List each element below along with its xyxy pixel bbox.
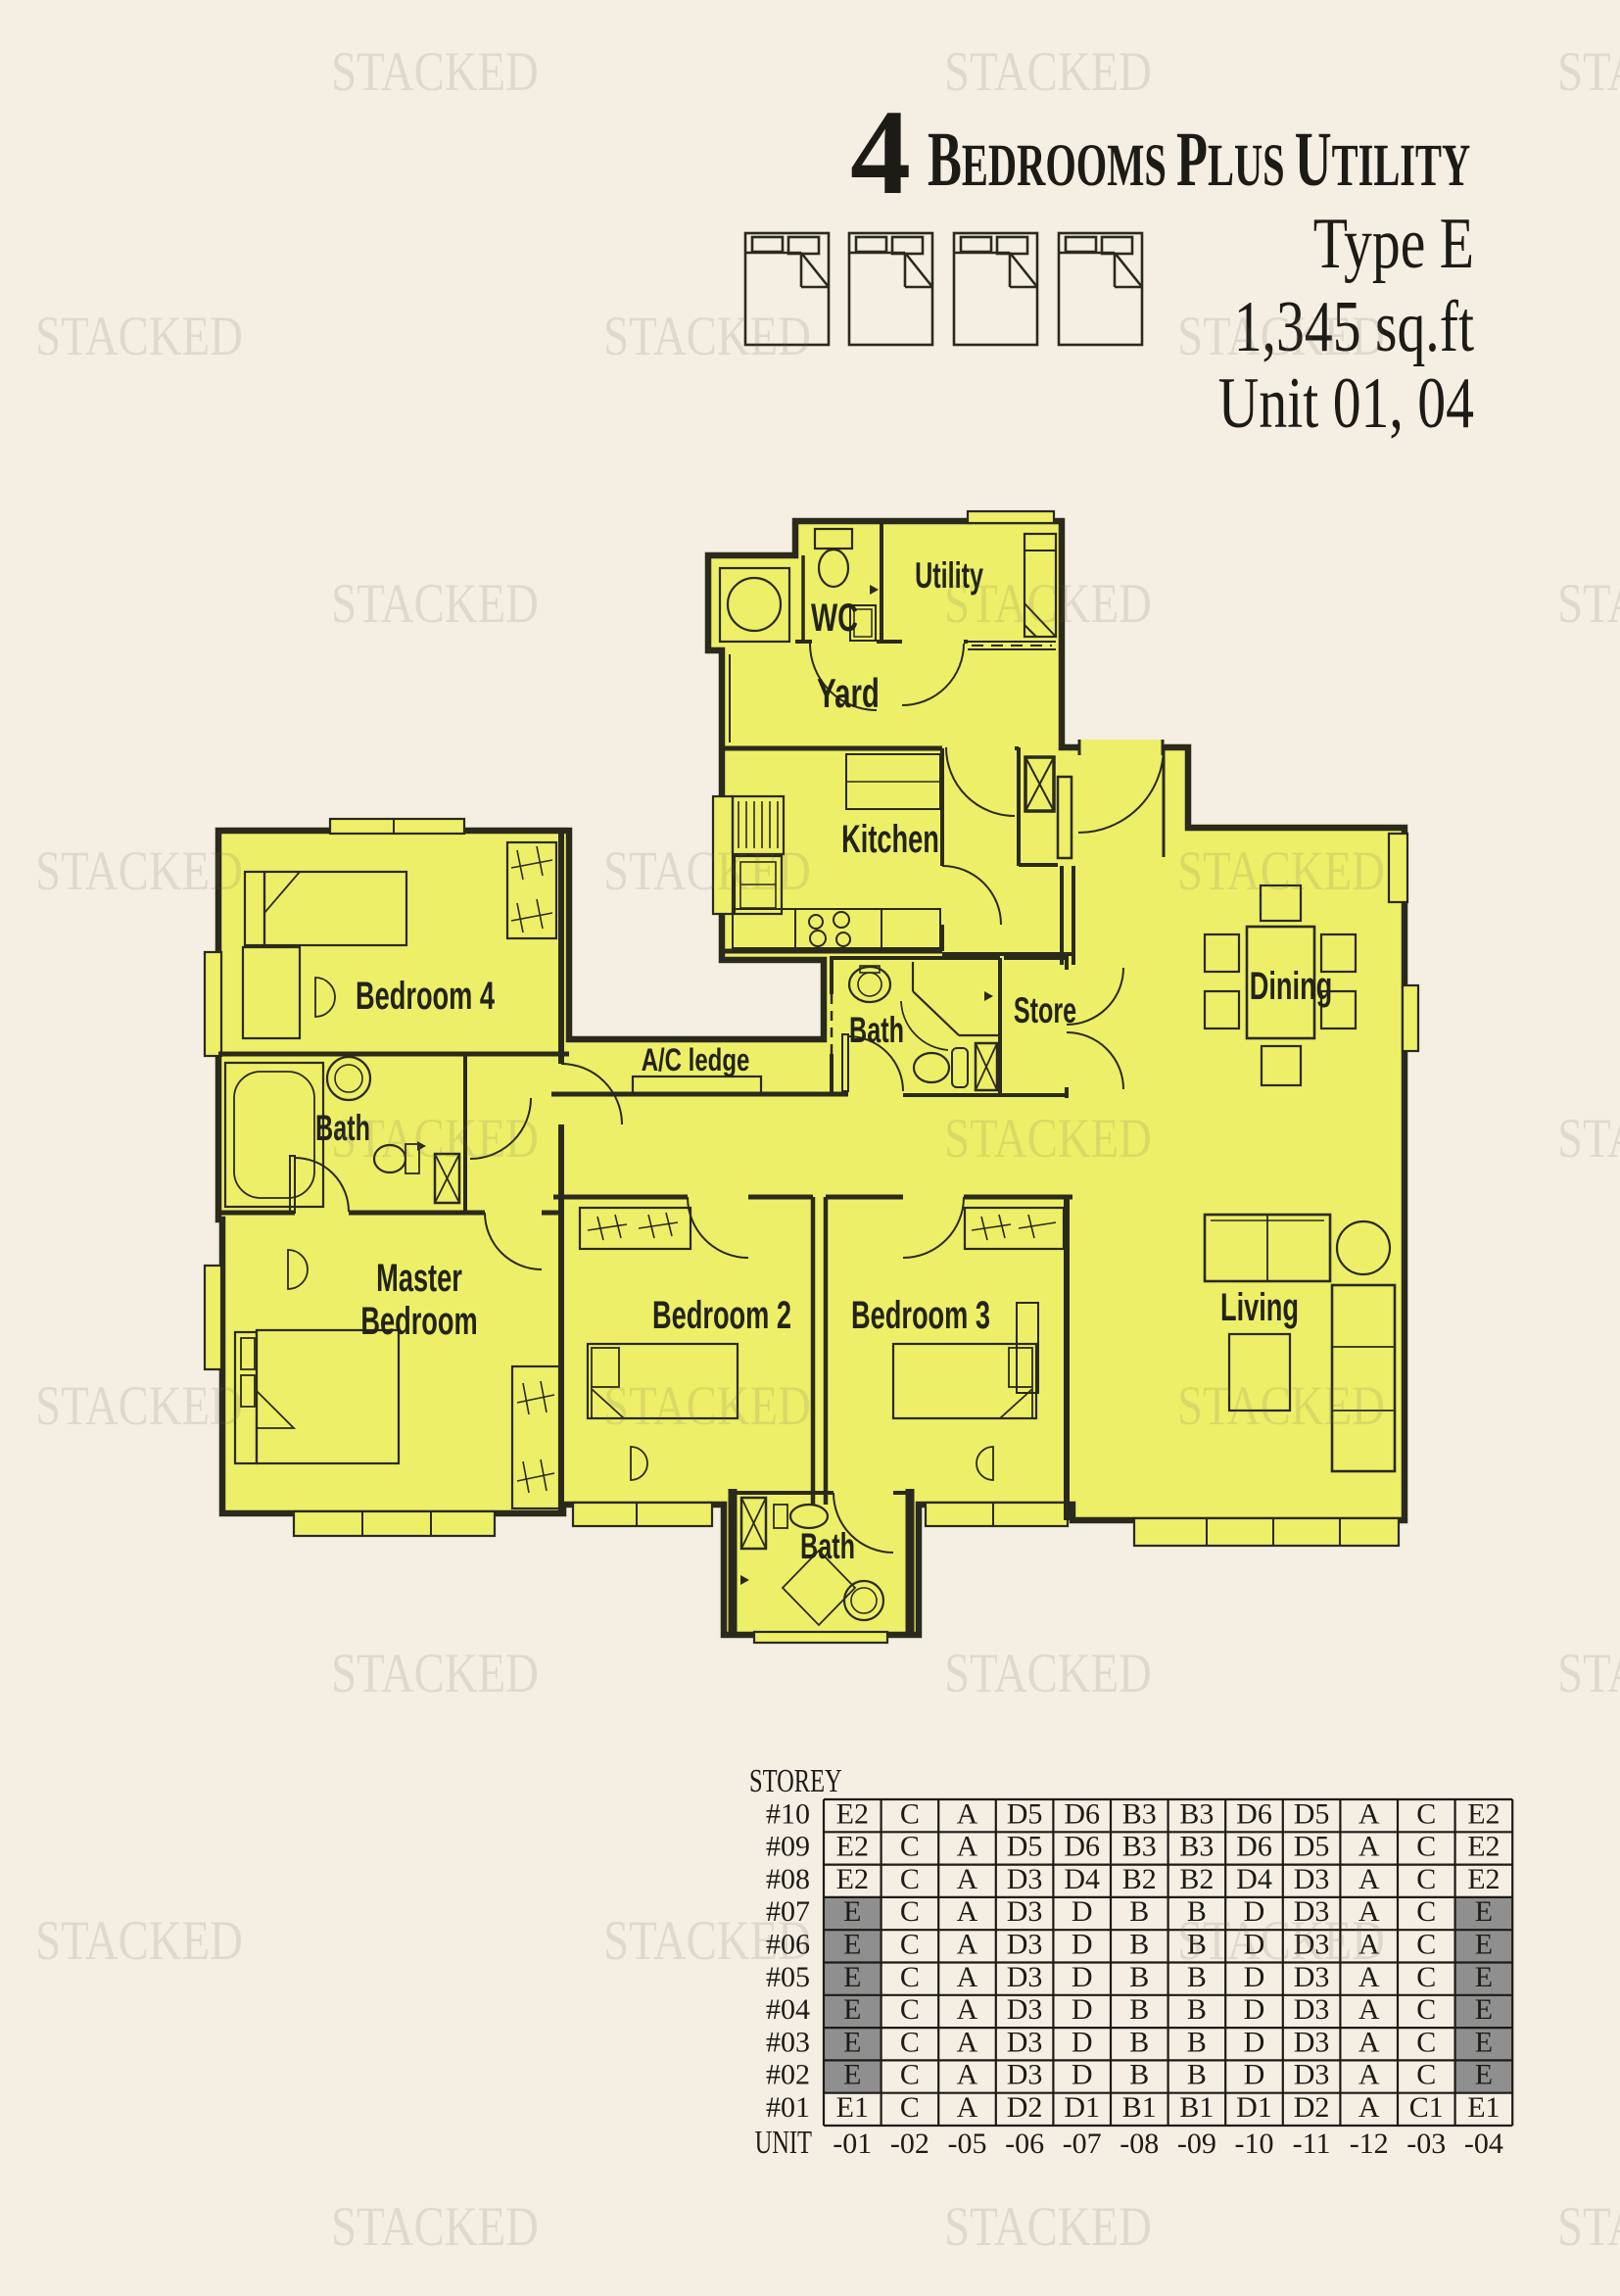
svg-text:STACKED: STACKED [35, 1911, 243, 1972]
svg-text:B: B [1129, 2026, 1149, 2058]
svg-text:STACKED: STACKED [944, 1109, 1152, 1170]
svg-text:STACKED: STACKED [331, 2197, 539, 2258]
svg-text:A: A [957, 1797, 978, 1830]
svg-text:B: B [1129, 1895, 1149, 1928]
svg-text:D: D [1244, 1993, 1265, 2026]
svg-text:B3: B3 [1179, 1831, 1214, 1863]
svg-text:Living: Living [1220, 1286, 1299, 1329]
svg-text:C: C [900, 2026, 920, 2058]
svg-text:C: C [900, 1797, 920, 1830]
svg-text:-07: -07 [1063, 2128, 1102, 2160]
svg-text:D3: D3 [1007, 2059, 1043, 2091]
svg-text:STACKED: STACKED [331, 1109, 539, 1170]
svg-text:4: 4 [850, 85, 911, 219]
svg-text:-12: -12 [1350, 2128, 1389, 2160]
svg-text:D3: D3 [1007, 1961, 1043, 1993]
svg-text:#08: #08 [766, 1863, 810, 1895]
svg-text:D5: D5 [1007, 1797, 1043, 1830]
svg-text:C: C [900, 1863, 920, 1895]
svg-text:D3: D3 [1294, 1993, 1330, 2026]
svg-text:E2: E2 [836, 1863, 869, 1895]
svg-text:A/C ledge: A/C ledge [642, 1042, 750, 1077]
svg-text:D3: D3 [1294, 1863, 1330, 1895]
svg-text:E: E [843, 2026, 861, 2058]
svg-text:D4: D4 [1236, 1863, 1272, 1895]
svg-text:B1: B1 [1122, 2091, 1157, 2124]
svg-text:C: C [1416, 2059, 1436, 2091]
svg-text:A: A [957, 1895, 978, 1928]
svg-text:D1: D1 [1064, 2091, 1100, 2124]
svg-text:#03: #03 [766, 2026, 810, 2058]
svg-text:D: D [1072, 1993, 1093, 2026]
svg-text:STACKED: STACKED [603, 841, 811, 902]
svg-text:STACKED: STACKED [944, 42, 1152, 103]
svg-text:B3: B3 [1122, 1831, 1157, 1863]
svg-text:C: C [1416, 1797, 1436, 1830]
svg-text:STACKED: STACKED [1557, 574, 1620, 635]
svg-text:C1: C1 [1409, 2091, 1444, 2124]
svg-text:Bath: Bath [849, 1009, 904, 1050]
svg-text:D6: D6 [1064, 1797, 1100, 1830]
svg-text:A: A [957, 1993, 978, 2026]
svg-text:Bath: Bath [800, 1525, 855, 1566]
svg-text:Bedroom 4: Bedroom 4 [356, 975, 495, 1018]
svg-text:D5: D5 [1007, 1831, 1043, 1863]
svg-text:E2: E2 [1467, 1863, 1500, 1895]
svg-text:D4: D4 [1064, 1863, 1100, 1895]
svg-text:-08: -08 [1120, 2128, 1159, 2160]
svg-text:STACKED: STACKED [35, 841, 243, 902]
svg-text:A: A [957, 2059, 978, 2091]
svg-text:E: E [843, 1993, 861, 2026]
svg-text:A: A [1358, 1831, 1380, 1863]
svg-text:STACKED: STACKED [331, 574, 539, 635]
svg-text:STACKED: STACKED [35, 307, 243, 367]
svg-text:STACKED: STACKED [331, 42, 539, 103]
svg-text:-03: -03 [1406, 2128, 1446, 2160]
svg-text:D: D [1072, 1961, 1093, 1993]
svg-text:-10: -10 [1235, 2128, 1274, 2160]
svg-text:D3: D3 [1294, 2059, 1330, 2091]
svg-text:C: C [900, 1993, 920, 2026]
svg-text:E: E [1475, 1895, 1493, 1928]
svg-text:D6: D6 [1064, 1831, 1100, 1863]
svg-text:E2: E2 [836, 1797, 869, 1830]
svg-text:-01: -01 [833, 2128, 872, 2160]
svg-text:#01: #01 [766, 2091, 810, 2124]
svg-text:D3: D3 [1294, 2026, 1330, 2058]
svg-text:C: C [1416, 2026, 1436, 2058]
svg-text:A: A [957, 1831, 978, 1863]
svg-text:Store: Store [1014, 989, 1076, 1030]
svg-text:C: C [1416, 1831, 1436, 1863]
svg-text:A: A [957, 1863, 978, 1895]
svg-text:A: A [957, 2091, 978, 2124]
svg-text:D6: D6 [1236, 1831, 1272, 1863]
svg-text:Bedroom 3: Bedroom 3 [851, 1294, 990, 1337]
svg-text:-06: -06 [1005, 2128, 1044, 2160]
svg-text:STACKED: STACKED [35, 1376, 243, 1437]
svg-text:Master: Master [376, 1257, 462, 1300]
svg-text:E2: E2 [1467, 1797, 1500, 1830]
svg-text:E: E [1475, 1961, 1493, 1993]
svg-text:E1: E1 [836, 2091, 869, 2124]
svg-text:B: B [1187, 1993, 1207, 2026]
svg-text:D1: D1 [1236, 2091, 1272, 2124]
svg-text:B1: B1 [1179, 2091, 1214, 2124]
svg-text:A: A [1358, 1863, 1380, 1895]
svg-text:D: D [1072, 2026, 1093, 2058]
svg-text:B3: B3 [1122, 1797, 1157, 1830]
svg-text:C: C [1416, 1961, 1436, 1993]
svg-text:C: C [900, 1961, 920, 1993]
svg-text:E: E [843, 1929, 861, 1961]
svg-text:D: D [1072, 1895, 1093, 1928]
svg-text:E: E [1475, 2059, 1493, 2091]
svg-text:STACKED: STACKED [603, 1911, 811, 1972]
svg-text:D3: D3 [1007, 1993, 1043, 2026]
svg-text:D: D [1244, 2026, 1265, 2058]
svg-text:STACKED: STACKED [603, 307, 811, 367]
svg-text:WC: WC [811, 596, 858, 640]
svg-text:STACKED: STACKED [1177, 307, 1385, 367]
svg-text:C: C [1416, 1993, 1436, 2026]
svg-text:D: D [1072, 1929, 1093, 1961]
svg-text:#04: #04 [766, 1993, 810, 2026]
svg-text:B: B [1187, 2059, 1207, 2091]
svg-text:STACKED: STACKED [1177, 841, 1385, 902]
svg-text:B: B [1129, 1993, 1149, 2026]
svg-text:B3: B3 [1179, 1797, 1214, 1830]
svg-text:A: A [1358, 2091, 1380, 2124]
svg-text:E: E [843, 1895, 861, 1928]
svg-text:B: B [1129, 2059, 1149, 2091]
svg-text:E: E [1475, 1929, 1493, 1961]
svg-text:A: A [957, 1961, 978, 1993]
svg-text:A: A [957, 2026, 978, 2058]
svg-text:C: C [1416, 1895, 1436, 1928]
svg-text:STACKED: STACKED [1557, 1109, 1620, 1170]
svg-text:Bedroom: Bedroom [360, 1300, 477, 1343]
svg-text:Kitchen: Kitchen [841, 818, 939, 861]
svg-text:D3: D3 [1007, 2026, 1043, 2058]
svg-text:STACKED: STACKED [944, 2197, 1152, 2258]
svg-text:#09: #09 [766, 1831, 810, 1863]
svg-text:A: A [1358, 2026, 1380, 2058]
svg-text:A: A [1358, 1993, 1380, 2026]
svg-text:STACKED: STACKED [1177, 1376, 1385, 1437]
svg-text:D5: D5 [1294, 1831, 1330, 1863]
svg-text:UNIT: UNIT [755, 2125, 812, 2161]
svg-text:STOREY: STOREY [749, 1763, 842, 1799]
svg-text:E1: E1 [1467, 2091, 1500, 2124]
svg-text:D3: D3 [1007, 1929, 1043, 1961]
svg-text:Yard: Yard [817, 670, 880, 717]
svg-text:B2: B2 [1122, 1863, 1157, 1895]
svg-text:-04: -04 [1464, 2128, 1503, 2160]
svg-text:C: C [1416, 1929, 1436, 1961]
svg-text:A: A [1358, 2059, 1380, 2091]
svg-text:Unit 01, 04: Unit 01, 04 [1218, 363, 1474, 443]
svg-text:D3: D3 [1007, 1863, 1043, 1895]
svg-text:B: B [1187, 2026, 1207, 2058]
svg-text:C: C [900, 1929, 920, 1961]
svg-text:STACKED: STACKED [1557, 42, 1620, 103]
svg-text:D6: D6 [1236, 1797, 1272, 1830]
svg-text:A: A [1358, 1797, 1380, 1830]
svg-text:D: D [1072, 2059, 1093, 2091]
svg-text:-11: -11 [1293, 2128, 1331, 2160]
svg-text:Type E: Type E [1313, 204, 1474, 283]
svg-text:D2: D2 [1007, 2091, 1043, 2124]
svg-text:A: A [957, 1929, 978, 1961]
svg-text:D5: D5 [1294, 1797, 1330, 1830]
svg-text:Dining: Dining [1250, 965, 1333, 1008]
svg-text:C: C [900, 2091, 920, 2124]
svg-text:-05: -05 [948, 2128, 987, 2160]
svg-text:C: C [900, 1895, 920, 1928]
svg-text:D2: D2 [1294, 2091, 1330, 2124]
svg-text:B: B [1129, 1961, 1149, 1993]
svg-text:STACKED: STACKED [1177, 1911, 1385, 1972]
svg-text:STACKED: STACKED [1557, 2197, 1620, 2258]
svg-text:E: E [843, 2059, 861, 2091]
svg-text:C: C [900, 2059, 920, 2091]
svg-text:STACKED: STACKED [603, 1376, 811, 1437]
svg-text:B2: B2 [1179, 1863, 1214, 1895]
svg-text:E: E [1475, 2026, 1493, 2058]
svg-text:B: B [1129, 1929, 1149, 1961]
svg-text:E2: E2 [836, 1831, 869, 1863]
svg-text:STACKED: STACKED [944, 1644, 1152, 1704]
svg-text:E: E [1475, 1993, 1493, 2026]
svg-text:E2: E2 [1467, 1831, 1500, 1863]
svg-text:STACKED: STACKED [1557, 1644, 1620, 1704]
svg-text:STACKED: STACKED [331, 1644, 539, 1704]
svg-text:C: C [1416, 1863, 1436, 1895]
svg-text:#10: #10 [766, 1797, 810, 1830]
svg-text:STACKED: STACKED [944, 574, 1152, 635]
svg-text:-09: -09 [1177, 2128, 1216, 2160]
svg-text:Bedroom 2: Bedroom 2 [652, 1294, 791, 1337]
svg-text:D: D [1244, 2059, 1265, 2091]
svg-text:C: C [900, 1831, 920, 1863]
svg-text:D3: D3 [1007, 1895, 1043, 1928]
svg-text:E: E [843, 1961, 861, 1993]
svg-text:#02: #02 [766, 2059, 810, 2091]
svg-text:-02: -02 [890, 2128, 929, 2160]
